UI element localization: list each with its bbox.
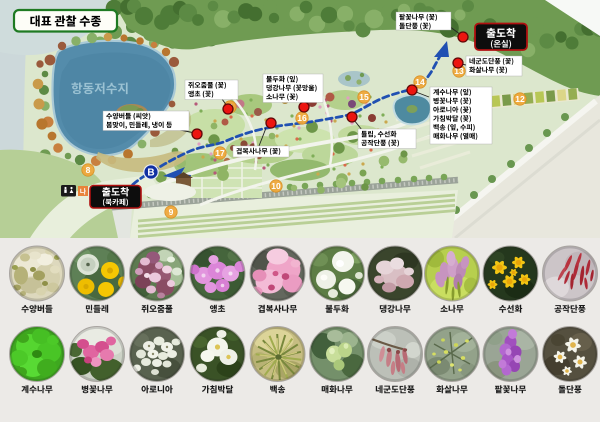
svg-text:9: 9 [169, 207, 174, 217]
svg-text:16: 16 [297, 113, 307, 123]
svg-text:14: 14 [415, 77, 425, 87]
svg-text:17: 17 [215, 148, 225, 158]
svg-text:15: 15 [359, 92, 369, 102]
svg-text:8: 8 [86, 165, 91, 175]
svg-text:B: B [147, 168, 154, 179]
svg-text:10: 10 [271, 181, 281, 191]
svg-text:12: 12 [515, 94, 525, 104]
